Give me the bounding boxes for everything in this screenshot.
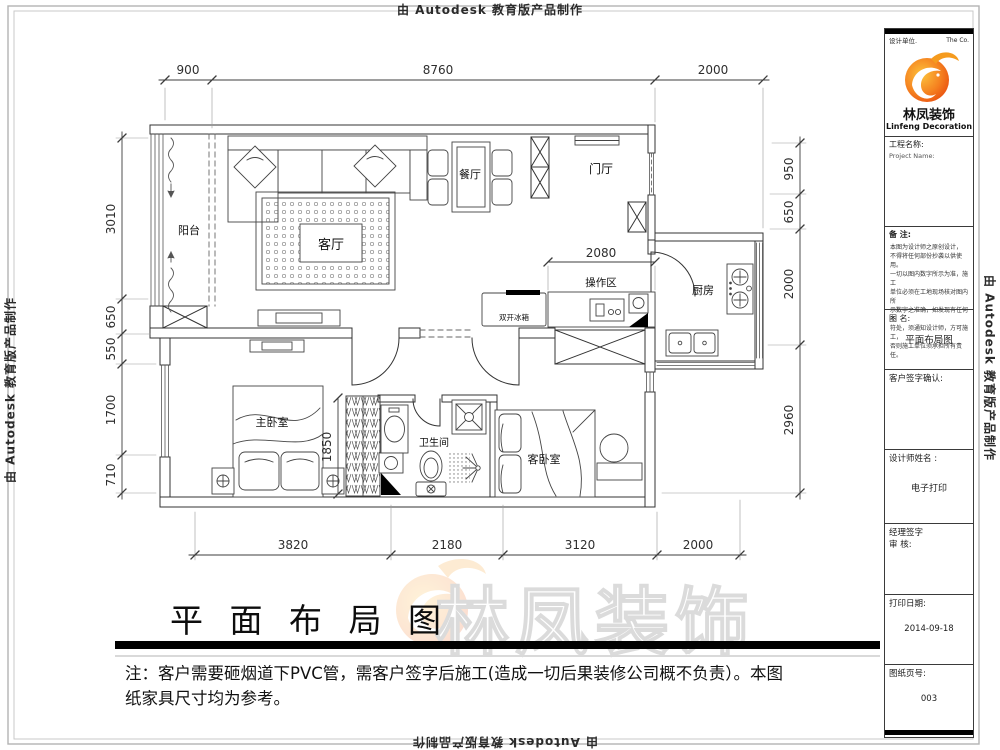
counter-sink [629,294,648,313]
curtain-symbols [168,138,174,312]
designer-name-value: 电子打印 [885,485,973,495]
tv-cabinet [258,310,340,326]
sheet-title: 平 面 布 局 图 [170,601,449,640]
kitchen-fixtures [666,264,753,356]
phoenix-logo-icon [898,47,960,105]
entry-window [650,153,654,195]
dim-bedroom-1850: 1850 [320,432,334,463]
master-bedroom-furniture [212,340,380,497]
title-block: 设计单位. The Co. 林凤装饰 Linfeng Decoration 工程… [884,28,974,738]
bathroom-door [413,399,440,426]
guest-bedroom-furniture [495,410,642,497]
drawing-name-value: 平面布局图 [885,336,973,346]
dim-left-550: 550 [104,338,118,361]
dim-left-3010: 3010 [104,204,118,235]
vanity-sink [381,405,408,453]
dim-right-950: 950 [782,158,796,181]
dim-left-650: 650 [104,306,118,329]
floor-plan: 900 8760 2000 3010 650 550 1700 710 950 … [104,63,806,560]
autodesk-banner-right: 由 Autodesk 教育版产品制作 [982,275,999,461]
title-underline-bar [115,641,880,649]
stool [600,434,628,462]
room-label-bathroom: 卫生间 [419,436,449,449]
design-unit-label: 设计单位. [889,38,917,45]
room-label-balcony: 阳台 [178,223,200,237]
small-appliance [590,299,624,321]
room-label-master: 主卧室 [256,415,289,429]
entry-area [575,136,619,145]
kitchen-sink [666,330,718,356]
fridge-handle [506,290,540,295]
title-block-top-bar [885,29,973,34]
company-short: The Co. [946,38,969,45]
room-label-living: 客厅 [318,237,344,253]
flue-marker-2 [381,473,401,495]
pillow [281,452,319,490]
entry-side-column-box [628,202,646,232]
client-signature-label: 客户签字确认: [889,375,943,384]
print-date-label: 打印日期: [889,600,926,609]
room-label-kitchen: 厨房 [692,284,714,297]
remark-line: 本图为设计师之原创设计， [890,243,968,252]
dim-right-2000: 2000 [782,269,796,300]
autodesk-banner-top: 由 Autodesk 教育版产品制作 [30,1,950,18]
pillow [499,414,521,452]
chair [428,150,448,176]
review-label: 审 核: [889,541,912,550]
autodesk-banner-bottom: 由 Autodesk 教育版产品制作 [40,734,970,750]
title-underline-thin [115,655,880,657]
designer-name-label: 设计师姓名 : [889,455,937,464]
bench [597,463,642,480]
cad-floorplan-page: 林凤装饰 [0,0,1000,750]
room-label-guest: 客卧室 [528,452,561,466]
dim-workarea-2080: 2080 [586,246,617,260]
living-room [228,136,427,326]
chair [492,150,512,176]
chair [428,179,448,205]
dim-left-710: 710 [104,464,118,487]
wardrobe [346,396,380,496]
chair [492,179,512,205]
dim-top-2000: 2000 [698,63,729,77]
shaft-box [555,330,645,364]
sheet-number-label: 图纸页号: [889,670,926,679]
company-logo: 林凤装饰 Linfeng Decoration [885,47,973,131]
pillow [499,455,521,493]
remark-line: 一切以图内数字所示为准，施工 [890,270,968,288]
brand-name-en: Linfeng Decoration [885,122,973,131]
dim-right-2960: 2960 [782,405,796,436]
master-window [162,365,169,457]
remarks-label: 备 注: [889,231,911,240]
nightstand-left [212,468,234,494]
guest-bedroom-door [472,338,519,385]
hall-opening [420,330,472,337]
watermark-brand-text: 林凤装饰 [435,580,755,666]
manager-signature-label: 经理签字 [889,529,923,538]
shower-base [452,400,486,434]
room-label-workarea: 操作区 [585,276,617,289]
dim-bottom-3820: 3820 [278,538,309,552]
room-label-entry: 门厅 [589,161,613,176]
shower-spray [449,452,480,485]
room-label-dining: 餐厅 [459,167,481,181]
dim-bottom-2000: 2000 [683,538,714,552]
dim-bottom-2180: 2180 [432,538,463,552]
note-line-1: 注：客户需要砸烟道下PVC管，需客户签字后施工(造成一切后果装修公司概不负责）。… [125,664,783,683]
brand-name-cn: 林凤装饰 [885,109,973,122]
drawing-sheet: 林凤装饰 [0,0,1000,750]
project-name-label: 工程名称: [889,141,924,150]
drawing-name-label: 图 名: [889,315,910,324]
dim-bottom-3120: 3120 [565,538,596,552]
remark-line: 不得将任何部份抄袭以供使用。 [890,252,968,270]
stove [727,264,753,314]
dim-top-900: 900 [177,63,200,77]
remark-line: 单位必须在工地现场核对图内所 [890,288,968,306]
dim-top-8760: 8760 [423,63,454,77]
master-bed [233,386,323,497]
project-name-label-en: Project Name: [889,153,935,160]
balcony-window [151,134,163,306]
dim-left-1700: 1700 [104,395,118,426]
fridge-label: 双开冰箱 [499,312,529,322]
toilet [416,451,446,496]
print-date-value: 2014-09-18 [885,625,973,634]
washing-machine [379,453,403,473]
dim-right-650: 650 [782,201,796,224]
master-tv [250,340,304,352]
master-bedroom-door [352,338,399,385]
note-line-2: 纸家具尺寸均为参考。 [125,689,290,708]
title-block-bottom-bar [885,730,973,735]
autodesk-banner-left: 由 Autodesk 教育版产品制作 [2,297,19,483]
sheet-number-value: 003 [885,695,973,704]
guest-window [647,372,654,392]
watermark: 林凤装饰 [396,559,755,666]
pillow [239,452,279,490]
entry-column-box [531,137,549,198]
nightstand-right [322,468,344,494]
